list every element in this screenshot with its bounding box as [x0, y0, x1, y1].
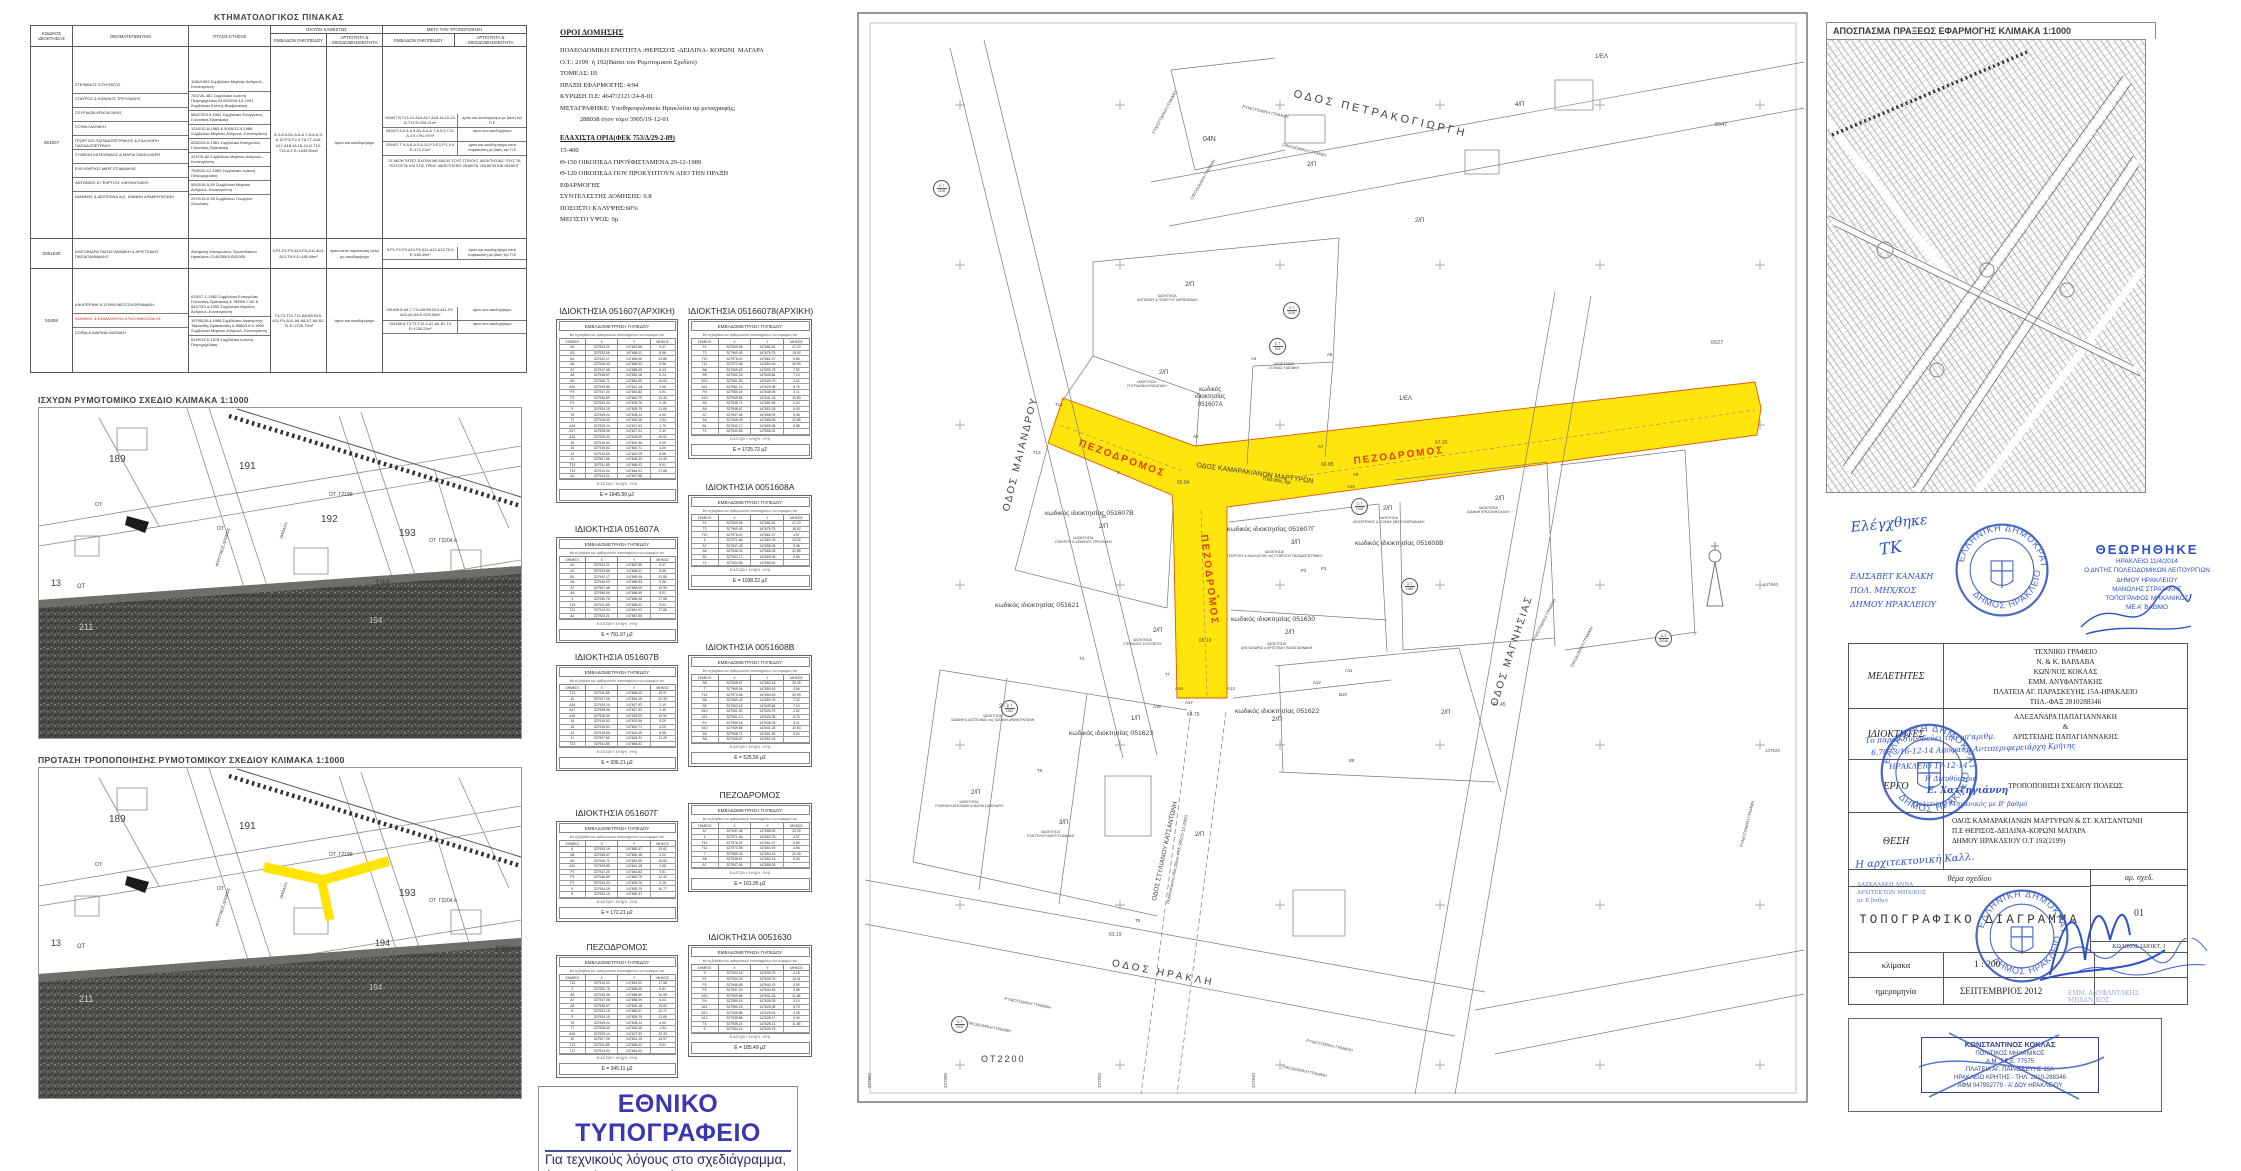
- ot-number: 2200: [952, 1025, 967, 1029]
- street-kamarakianon-martyron: ΟΔΟΣ ΚΑΜΑΡΑΚΙΑΝΩΝ ΜΑΡΤΥΡΩΝ: [1196, 462, 1314, 487]
- map-label: 6627: [1711, 340, 1723, 347]
- street-magnisias: ΟΔΟΣ ΜΑΓΝΗΣΙΑΣ: [1489, 594, 1536, 708]
- thesi-line: ΔΗΜΟΥ ΗΡΑΚΛΕΙΟΥ Ο.Τ 192(2199): [1952, 836, 2185, 846]
- coord-table-header: ΕΜΒΑΔΟΜΕΤΡΗΣΗ ΓΗΠΕΔΟΥ: [691, 805, 810, 815]
- after-row: 051608 Β Α8-7-Τ11-Β8-Β9-Β10-Α11-Ρ4-Α10-Α…: [383, 307, 526, 321]
- coord-total: Ε = 1038.22 μ2: [691, 575, 810, 587]
- cadastral-table-panel: ΚΤΗΜΑΤΟΛΟΓΙΚΟΣ ΠΙΝΑΚΑΣ ΚΩΔΙΚΟΣ ΙΔΙΟΚΤΗΣΙ…: [30, 12, 528, 373]
- current-area: Τ4-Τ3-Τ10-Τ11-Β8-Β9-Β10-Α11-Ρ4-Α10-Α9-Α8…: [271, 269, 327, 373]
- after-modification: 051607 Β Τ13-10-Α16-Α17-Α18-16-15-13-Β-Τ…: [383, 47, 527, 239]
- coord-total: Ε = 525.56 μ2: [691, 752, 810, 764]
- scale-label: κλίμακα: [1849, 953, 1944, 977]
- map-label: Ρ3: [1321, 566, 1326, 571]
- dense-cadastral-texture: [1827, 40, 2145, 492]
- after-status: άρτιο και οικοδομήσιμο με βάση την Π.Ε: [458, 114, 526, 127]
- coord-table-box: ΕΜΒΑΔΟΜΕΤΡΗΣΗ ΓΗΠΕΔΟΥΜε τη βοήθεια των ο…: [556, 665, 678, 772]
- idioktites-line: &: [1946, 722, 2185, 732]
- pezodromos-left-label: ΠΕΖΟΔΡΟΜΟΣ: [1077, 438, 1167, 480]
- ot-number: 1928: [1352, 507, 1367, 511]
- map-label: ΙΔΙΟΚΤΗΣΙΑ ΣΟΦΙΑΣ ΛΙΑΠΑΚΗ: [1269, 362, 1299, 371]
- idioktites-line: ΑΡΙΣΤΕΙΔΗΣ ΠΑΠΑΓΙΑΝΝΑΚΗΣ: [1946, 732, 2185, 742]
- col-header-area: ΕΜΒΑΔΟΝ ΟΙΚΟΠΕΔΟΥ: [271, 34, 327, 47]
- map-label: ΟΤ: [77, 584, 85, 591]
- coord-table-subtitle: Με τη βοήθεια των ορθογωνικών συντεταγμέ…: [691, 667, 810, 674]
- map-label: ΙΔΙΟΚΤΗΣΙΑ ΣΥΜΕΩΝ ΚΑΤΕΧΝΙΔΗ & ΜΑΡΙΑ ΣΑΚΕ…: [935, 800, 1003, 808]
- coord-table-header: ΕΜΒΑΔΟΜΕΤΡΗΣΗ ΓΗΠΕΔΟΥ: [559, 667, 676, 677]
- coord-table-box: ΕΜΒΑΔΟΜΕΤΡΗΣΗ ΓΗΠΕΔΟΥΜε τη βοήθεια των ο…: [556, 537, 678, 644]
- terms-limits-heading: ΕΛΑΧΙΣΤΑ ΟΡΙΑ(ΦΕΚ 753/Δ/29-2-89): [560, 135, 870, 142]
- after-status: άρτιο και οικοδομήσιμο: [458, 128, 526, 141]
- map-label: 3/Π: [1291, 540, 1300, 547]
- ot-number: 2204Α: [1656, 639, 1671, 643]
- terms-line: ΜΕΓΙΣΤΟ ΥΨΟΣ: 9μ: [560, 216, 870, 223]
- faded-name-line: ΕΜΜ. ΑΝΥΦΑΝΤΑΚΗΣ: [2068, 990, 2139, 997]
- map-label: 211: [79, 622, 93, 633]
- coord-table-title: ΙΔΙΟΚΤΗΣΙΑ 0051608Β: [688, 642, 812, 652]
- thesi-line: ΟΔΟΣ ΚΑΜΑΡΑΚΙΑΝΩΝ ΜΑΡΤΥΡΩΝ & ΣΤ. ΚΑΤΣΑΝΤ…: [1952, 816, 2185, 826]
- map-label: 66.85: [1321, 462, 1334, 468]
- parcel-051607B: κωδικός ιδιοκτησίας 051607Β: [1045, 510, 1134, 518]
- coord-table: ΙΔΙΟΚΤΗΣΙΑ 051607ΑΕΜΒΑΔΟΜΕΤΡΗΣΗ ΓΗΠΕΔΟΥΜ…: [556, 524, 678, 643]
- handwriting-scribble: [2060, 938, 2230, 988]
- map-label: 192: [321, 514, 338, 526]
- map-label: 3/Π: [1059, 820, 1068, 827]
- coord-table: ΙΔΙΟΚΤΗΣΙΑ 051607ΒΕΜΒΑΔΟΜΕΤΡΗΣΗ ΓΗΠΕΔΟΥΜ…: [556, 652, 678, 771]
- coord-table: ΙΔΙΟΚΤΗΣΙΑ 0051608ΑΕΜΒΑΔΟΜΕΤΡΗΣΗ ΓΗΠΕΔΟΥ…: [688, 482, 812, 590]
- current-plan-map-panel: ΙΣΧΥΩΝ ΡΥΜΟΤΟΜΙΚΟ ΣΧΕΔΙΟ ΚΛΙΜΑΚΑ 1:1000: [38, 395, 522, 739]
- owner-deed: 1186/1993 Συμβόλαιο Μερίνας Ανδρουλ.-Κον…: [189, 78, 270, 92]
- coord-table-box: ΕΜΒΑΔΟΜΕΤΡΗΣΗ ΓΗΠΕΔΟΥΜε τη βοήθεια των ο…: [688, 803, 812, 893]
- owner-deed: 8282/25-5-1981 Συμβόλαιο Ευαγγελίας Γαλα…: [189, 139, 270, 153]
- map-label: 195: [495, 584, 510, 595]
- coord-grid: ΣΗΜΕΙΟΧΥΜΗΚΟΣ9327934.15147639.750.18Ρ132…: [691, 964, 810, 1033]
- map-label: 189: [109, 454, 126, 466]
- map-label: ΙΔΙΟΚΤΗΣΙΑ ΓΕΩΡΓΙΟΥ & ΚΑΛΛΙΟΠΗΣ συζ ΓΕΩΡ…: [1227, 550, 1322, 558]
- map-label: ΡΥΜΟΤΟΜΙΚΗ ΓΡΑΜΜΗ: [1739, 800, 1755, 847]
- coord-formula: Ε=1/2 Σ(Χι + Χι+1)(Υι - Υι+1): [559, 479, 676, 487]
- designers-label: ΜΕΛΕΤΗΤΕΣ: [1849, 644, 1944, 708]
- owner-deed: 6150/7-1-1982 Συμβόλαιο Ευαγγελίας Γαλαν…: [189, 293, 270, 317]
- after-modification: 051608 Β Α8-7-Τ11-Β8-Β9-Β10-Α11-Ρ4-Α10-Α…: [383, 269, 527, 373]
- print-office-note: ΕΘΝΙΚΟ ΤΥΠΟΓΡΑΦΕΙΟ Για τεχνικούς λόγους …: [538, 1086, 798, 1171]
- map-label: ΡΥΜΟΤΟΜΙΚΗ ΓΡΑΜΜΗ: [1306, 1038, 1353, 1053]
- building-terms-heading: ΟΡΟΙ ΔΟΜΗΣΗΣ: [560, 28, 870, 37]
- meletites-line: ΤΕΧΝΙΚΟ ΓΡΑΦΕΙΟ: [1946, 647, 2185, 657]
- owner-deed: 6149/13-5-1978 Συμβόλαιο Ιωάννη Πετρομιχ…: [189, 336, 270, 349]
- map-label: 193: [399, 888, 416, 900]
- coord-table: ΠΕΖΟΔΡΟΜΟΣΕΜΒΑΔΟΜΕΤΡΗΣΗ ΓΗΠΕΔΟΥΜε τη βοή…: [556, 942, 678, 1078]
- municipal-stamp-slot: ΕΛΛΗΝΙΚΗ ΔΗΜΟΚΡΑΤΙΑ ΔΗΜΟΣ ΗΡΑΚΛΕΙΟΥ: [1952, 520, 2052, 620]
- map-label: Α16: [1175, 686, 1183, 691]
- survey-sheet: ΚΤΗΜΑΤΟΛΟΓΙΚΟΣ ΠΙΝΑΚΑΣ ΚΩΔΙΚΟΣ ΙΔΙΟΚΤΗΣΙ…: [0, 0, 2241, 1171]
- map-label: Τ7: [1165, 672, 1170, 677]
- ot-circle: Ο.Τ192: [1269, 338, 1286, 355]
- map-label: ΔΙΑΒΑΣΗ: [279, 882, 289, 900]
- handwritten-note: ΔΗΜΟΥ ΗΡΑΚΛΕΙΟΥ: [1850, 600, 1936, 609]
- designers-value: ΤΕΧΝΙΚΟ ΓΡΑΦΕΙΟΝ. & Κ. ΒΑΡΔΑΒΑΚΩΝ/ΝΟΣ ΚΟ…: [1944, 644, 2187, 708]
- owner-name: ΑΛΕΞΑΝΔΡΑ ΠΑΠΑΓΙΑΝΝΑΚΗ & ΑΡΙΣΤΕΙΔΗΣ ΠΑΠΑ…: [73, 247, 188, 260]
- map-label: ΙΔΙΟΚΤΗΣΙΑ ΑΙΚΑΤΕΡΙΝΗΣ & ΣΟΦΙΑΣ ΜΕΣΣΟΧΩΡ…: [1353, 516, 1424, 524]
- map-label: ΟΤ: [95, 502, 102, 508]
- coord-table-subtitle: Με τη βοήθεια των ορθογωνικών συντεταγμέ…: [559, 677, 676, 684]
- after-row: 9-Ρ1-Ρ2-Ρ3-Α10-Ρ4-Α11-Α12-Α13-Τ6-9 Ε=185…: [383, 247, 526, 261]
- owner-name: ΑΙΚΑΤΕΡΙΝΗ & ΣΟΦΙΑ ΜΕΣΣΟΧΩΡΙΑΝΑΚΗ: [73, 300, 188, 314]
- map-label: ΟΤ: [217, 886, 224, 892]
- implementation-act-panel: ΑΠΟΣΠΑΣΜΑ ΠΡΑΞΕΩΣ ΕΦΑΡΜΟΓΗΣ ΚΛΙΜΑΚΑ 1:10…: [1826, 22, 2156, 493]
- map-label: ΡΥΜΟΤΟΜΙΚΗ ΓΡΑΜΜΗ: [1151, 90, 1178, 134]
- coord-formula: Ε=1/2 Σ(Χι + Χι+1)(Υι - Υι+1): [559, 619, 676, 627]
- map-label: ΟΤ Γ2204 α: [429, 898, 457, 904]
- group-code: 051607: [31, 47, 73, 239]
- cadastral-group-51608: 51608ΑΙΚΑΤΕΡΙΝΗ & ΣΟΦΙΑ ΜΕΣΣΟΧΩΡΙΑΝΑΚΗΙΩ…: [31, 269, 527, 373]
- coord-formula: Ε=1/2 Σ(Χι + Χι+1)(Υι - Υι+1): [691, 868, 810, 876]
- map-label: ΡΥΜΟΤΟΜΙΚΗ ΓΡΑΜΜΗ: [1004, 996, 1051, 1010]
- terms-line: 15-400: [560, 147, 870, 154]
- cadastral-table: ΚΩΔΙΚΟΣ ΙΔΙΟΚΤΗΣΙΑΣ ΟΝΟΜΑΤΕΠΩΝΥΜΟ ΤΙΤΛΟΣ…: [30, 25, 527, 373]
- stamp-cross-strokes: [1909, 1027, 2109, 1107]
- after-row: 051607 Β Τ13-10-Α16-Α17-Α18-16-15-13-Β-Τ…: [383, 114, 526, 128]
- map-label: Α5: [1193, 434, 1198, 439]
- coord-table: ΙΔΙΟΚΤΗΣΙΑ 05166078(ΑΡΧΙΚΗ)ΕΜΒΑΔΟΜΕΤΡΗΣΗ…: [688, 306, 812, 459]
- coord-total: Ε = 185.49 μ2: [691, 1042, 810, 1054]
- meletites-line: ΠΛΑΤΕΙΑ ΑΓ. ΠΑΡΑΣΚΕΥΗΣ 15Α-ΗΡΑΚΛΕΙΟ: [1946, 687, 2185, 697]
- handwritten-note: ΕΛΙΣΑΒΕΤ ΚΑΝΑΚΗ: [1850, 572, 1933, 581]
- coord-table-header: ΕΜΒΑΔΟΜΕΤΡΗΣΗ ΓΗΠΕΔΟΥ: [691, 947, 810, 957]
- map-label: ΙΔΙΟΚΤΗΣΙΑ ΑΛΕΞΑΝΔΡΑΣ & ΑΡΙΣΤΕΙΔΗ ΠΑΠΑΓΙ…: [1241, 642, 1312, 650]
- ot-circle: Ο.Τ2200: [951, 1016, 968, 1033]
- faded-engineer-name: ΕΜΜ. ΑΝΥΦΑΝΤΑΚΗΣΜΗΧΑΝΙΚΟΣ: [2068, 990, 2139, 1004]
- map-label: ΔΙΑΒΑΣΗ: [279, 522, 289, 540]
- after-row: 051608 Α Τ4-Τ3-Τ10-4-Α7-Α6-Β1-Τ4 Ε=1038.…: [383, 321, 526, 335]
- map-label: 2/Π: [1159, 370, 1168, 377]
- parcel-051607G: κωδικός ιδιοκτησίας 051607Γ: [1227, 526, 1315, 534]
- map-label: Τ13: [1033, 450, 1041, 455]
- map-label: Α4: [1251, 356, 1256, 361]
- terms-line: ΤΟΜΕΑΣ: ΙΙΙ: [560, 70, 870, 77]
- coord-formula: Ε=1/2 Σ(Χι + Χι+1)(Υι - Υι+1): [691, 743, 810, 751]
- after-points: 051607 Α Α.3-Α.5-Β1-Α.6-Α.7-Α.5-9-Τ13-Α.…: [383, 128, 458, 141]
- cadastral-group-051607: 051607ΣΤΕΦΑΝΟΣ ΣΟΥΛΤΑΤΟΣΣΤΑΥΡΟΣ & ΚΩΝ/ΝΟ…: [31, 47, 527, 239]
- after-modification: 9-Ρ1-Ρ2-Ρ3-Α10-Ρ4-Α11-Α12-Α13-Τ6-9 Ε=185…: [383, 239, 527, 269]
- map-label: ΟΤ: [217, 526, 224, 532]
- owner-deed: 3197/5-82 Συμβόλαιο Μερίνας Ανδρουλ.-Κον…: [189, 153, 270, 167]
- map-label: 191: [239, 821, 256, 833]
- building-terms-panel: ΟΡΟΙ ΔΟΜΗΣΗΣ ΠΟΛΕΟΔΟΜΙΚΗ ΕΝΟΤΗΤΑ :ΘΕΡΙΣΣ…: [560, 28, 870, 228]
- map-label: ΟΤ: [95, 862, 102, 868]
- map-label: Α18: [1153, 704, 1161, 709]
- map-label: 9: [1217, 594, 1219, 599]
- map-label: 193: [399, 528, 416, 540]
- col-header-code: ΚΩΔΙΚΟΣ ΙΔΙΟΚΤΗΣΙΑΣ: [31, 26, 73, 47]
- map-label: 2/Π: [971, 790, 980, 797]
- map-label: 2/Π: [1285, 630, 1294, 637]
- map-label: 63.19: [1109, 932, 1122, 938]
- after-row: 051607 Γ 9-Α.8-Α.9-Α.10-Ρ.3-Ρ.2-Ρ.1-9-9 …: [383, 142, 526, 156]
- col-header-title: ΤΙΤΛΟΣ ΚΤΗΣΗΣ: [189, 26, 271, 47]
- map-label: Τ12: [1055, 402, 1063, 407]
- map-label: 191: [239, 461, 256, 473]
- map-label: 64.75: [1187, 712, 1200, 718]
- parcel-051622: κωδικός ιδιοκτησίας 051622 2/Π: [1235, 708, 1319, 724]
- coord-table-header: ΕΜΒΑΔΟΜΕΤΡΗΣΗ ΓΗΠΕΔΟΥ: [559, 539, 676, 549]
- coord-table-box: ΕΜΒΑΔΟΜΕΤΡΗΣΗ ΓΗΠΕΔΟΥΜε τη βοήθεια των ο…: [688, 495, 812, 590]
- coord-table-subtitle: Με τη βοήθεια των ορθογωνικών συντεταγμέ…: [691, 331, 810, 338]
- coord-table: ΙΔΙΟΚΤΗΣΙΑ 051607(ΑΡΧΙΚΗ)ΕΜΒΑΔΟΜΕΤΡΗΣΗ Γ…: [556, 306, 678, 503]
- engineer-stamp-box: ΚΩΝΣΤΑΝΤΙΝΟΣ ΚΟΚΛΑΣΠΟΛΙΤΙΚΟΣ ΜΗΧΑΝΙΚΟΣΑ.…: [1848, 1018, 2162, 1112]
- terms-line: 288038 στον τόμο 3905/19-12-01: [560, 116, 870, 123]
- coord-grid: ΣΗΜΕΙΟΧΥΜΗΚΟΣΤ4327940.55147656.5247.23Τ3…: [691, 338, 810, 435]
- implementation-act-map: [1826, 39, 2146, 493]
- coord-table-header: ΕΜΒΑΔΟΜΕΤΡΗΣΗ ΓΗΠΕΔΟΥ: [559, 321, 676, 331]
- coord-table-title: ΙΔΙΟΚΤΗΣΙΑ 051607Β: [556, 652, 678, 662]
- ot-circle: Ο.Τ1928: [1351, 498, 1368, 515]
- map-label: 2/Π: [1185, 282, 1194, 289]
- col-header-after: ΜΕΤΑ ΤΗΝ ΤΡΟΠΟΠΟΙΗΣΗ: [383, 26, 527, 34]
- coord-table-subtitle: Με τη βοήθεια των ορθογωνικών συντεταγμέ…: [559, 833, 676, 840]
- coord-table-title: ΙΔΙΟΚΤΗΣΙΑ 051607Γ: [556, 808, 678, 818]
- meletites-line: ΕΜΜ. ΑΝΥΦΑΝΤΑΚΗΣ: [1946, 677, 2185, 687]
- ot-number: 1982: [1002, 709, 1017, 713]
- map-label: ΙΔΙΟΚΤΗΣΙΑ ΙΩΑΝΝΗ ΚΡΑΣΟΝΙΚΟΛΑΚΗ: [1467, 506, 1510, 514]
- street-petrakogiorgi: ΟΔΟΣ ΠΕΤΡΑΚΟΓΙΩΡΓΗ: [1292, 88, 1468, 141]
- parcel-051623: κωδικός ιδιοκτησίας 051623: [1069, 730, 1153, 738]
- map-label: ΟΤ Γ2199: [329, 852, 353, 858]
- coord-table-title: ΙΔΙΟΚΤΗΣΙΑ 0051608Α: [688, 482, 812, 492]
- owner-name: ΣΟΦΙΑ ΛΙΑΠΑΚΗ: [73, 122, 188, 136]
- owner-name: ΙΩΑΝΝΗΣ & ΔΕΣΠΟΙΝΑ συζ. ΙΩΑΝΝΗ ΔΡΑΜΟΥΝΤΑ…: [73, 192, 188, 205]
- current-status: άρτιο και οικοδομήσιμο: [327, 269, 383, 373]
- map-label: Ρ2: [1301, 568, 1306, 573]
- owner-name: ΣΥΜΕΩΝ ΚΑΤΕΧΝΙΔΗΣ & ΜΑΡΙΑ ΣΑΚΕΛΛΑΡΗ: [73, 150, 188, 164]
- map-label: Α10: [1347, 484, 1355, 489]
- map-label: 2/Π: [1383, 506, 1392, 513]
- map-label: ΙΔΙΟΚΤΗΣΙΑ ΑΝΤΩΝΙΟΥ & ΓΕΩΡΓΙΟΥ ΧΑΡΩΝΙΤΑΚ…: [1137, 294, 1197, 302]
- coord-grid: ΣΗΜΕΙΟΧΥΜΗΚΟΣ8327933.15147650.4710.62Α83…: [559, 840, 676, 897]
- map-label: 194: [369, 983, 382, 993]
- signature: [2076, 582, 2196, 642]
- map-label: 2/Π: [1153, 628, 1162, 635]
- coord-grid: ΣΗΜΕΙΟΧΥΜΗΚΟΣΑ7327947.48147658.0924.3043…: [691, 822, 810, 868]
- map-label: 1/Π: [1131, 716, 1140, 723]
- current-plan-map-title: ΙΣΧΥΩΝ ΡΥΜΟΤΟΜΙΚΟ ΣΧΕΔΙΟ ΚΛΙΜΑΚΑ 1:1000: [38, 395, 522, 405]
- coord-table-box: ΕΜΒΑΔΟΜΕΤΡΗΣΗ ΓΗΠΕΔΟΥΜε τη βοήθεια των ο…: [556, 955, 678, 1078]
- terms-line: ΚΥΡΩΣΗ Π.Ε: 4647/2121/24-8-01: [560, 93, 870, 100]
- coord-table-title: ΙΔΙΟΚΤΗΣΙΑ 051607(ΑΡΧΙΚΗ): [556, 306, 678, 316]
- map-label: 211: [79, 994, 93, 1005]
- coord-table-subtitle: Με τη βοήθεια των ορθογωνικών συντεταγμέ…: [559, 331, 676, 338]
- map-label: 67.45: [1493, 702, 1506, 708]
- ot-number: 2198: [934, 189, 949, 193]
- coord-total: Ε = 1645.50 μ2: [559, 489, 676, 501]
- coord-formula: Ε=1/2 Σ(Χι + Χι+1)(Υι - Υι+1): [691, 566, 810, 574]
- coord-table-subtitle: Με τη βοήθεια των ορθογωνικών συντεταγμέ…: [691, 815, 810, 822]
- after-status: άρτιο και οικοδομήσιμο κατά παρέκκλιση μ…: [458, 142, 526, 155]
- map-label: 6647: [1715, 122, 1727, 129]
- col-header-area2: ΕΜΒΑΔΟΝ ΟΙΚΟΠΕΔΟΥ: [383, 34, 455, 47]
- map-label: 194: [369, 616, 382, 626]
- ot-number: 192: [1270, 347, 1285, 351]
- after-points: 051607 Γ 9-Α.8-Α.9-Α.10-Ρ.3-Ρ.2-Ρ.1-9-9 …: [383, 142, 458, 155]
- col-header-buildable: ΑΡΤΙΟΤΗΤΑ & ΟΙΚΟΔΟΜΗΣΙΜΟΤΗΤΑ: [327, 34, 383, 47]
- terms-line: ΠΟΣΟΣΤΟ ΚΑΛΥΨΗΣ:60%: [560, 205, 870, 212]
- map-label: ΡΥΜΟΤΟΜΙΚΗ ΓΡΑΜΜΗ: [1531, 598, 1557, 642]
- owner-name: ΣΤΕΦΑΝΟΣ ΣΟΥΛΤΑΤΟΣ: [73, 80, 188, 94]
- coord-table: ΠΕΖΟΔΡΟΜΟΣΕΜΒΑΔΟΜΕΤΡΗΣΗ ΓΗΠΕΔΟΥΜε τη βοή…: [688, 790, 812, 892]
- coord-table-subtitle: Με τη βοήθεια των ορθογωνικών συντεταγμέ…: [559, 549, 676, 556]
- col-header-name: ΟΝΟΜΑΤΕΠΩΝΥΜΟ: [73, 26, 189, 47]
- coord-table-box: ΕΜΒΑΔΟΜΕΤΡΗΣΗ ΓΗΠΕΔΟΥΜε τη βοήθεια των ο…: [688, 319, 812, 459]
- approval-title: ΘΕΩΡΗΘΗΚΕ: [2062, 542, 2232, 557]
- map-label: 2/Π: [1195, 832, 1204, 839]
- coord-table-subtitle: Με τη βοήθεια των ορθογωνικών συντεταγμέ…: [559, 967, 676, 974]
- map-label: 194: [375, 578, 390, 589]
- print-note-line1: Για τεχνικούς λόγους στο σχεδιάγραμμα,: [545, 1152, 791, 1169]
- proposal-plan-map-panel: ΠΡΟΤΑΣΗ ΤΡΟΠΟΠΟΙΗΣΗΣ ΡΥΜΟΤΟΜΙΚΟΥ ΣΧΕΔΙΟΥ…: [38, 755, 522, 1099]
- map-label: Τ5: [1135, 918, 1140, 923]
- handwritten-note: ΤΚ: [1878, 537, 1903, 559]
- coord-table-header: ΕΜΒΑΔΟΜΕΤΡΗΣΗ ΓΗΠΕΔΟΥ: [691, 321, 810, 331]
- coord-table-header: ΕΜΒΑΔΟΜΕΤΡΗΣΗ ΓΗΠΕΔΟΥ: [691, 497, 810, 507]
- terms-line: ΜΕΤΑΓΡΑΦΗΚΕ: Υποθηκοφυλακείο Ηρακλείου α…: [560, 105, 870, 112]
- map-label: 13: [51, 938, 61, 949]
- map-label: ΙΔΙΟΚΤΗΣΙΑ ΣΠΥΡΙΔΩΝΑ ΚΡΑΣΑΓΑΚΗ: [1127, 380, 1167, 388]
- print-office-title: ΕΘΝΙΚΟ ΤΥΠΟΓΡΑΦΕΙΟ: [545, 1090, 791, 1152]
- handwritten-note: ΠΟΛ. ΜΗΧ/ΚΟΣ: [1850, 586, 1916, 595]
- coord-table-box: ΕΜΒΑΔΟΜΕΤΡΗΣΗ ΓΗΠΕΔΟΥΜε τη βοήθεια των ο…: [556, 319, 678, 504]
- map-label: Β10: [1339, 692, 1347, 697]
- faded-name-line: ΜΗΧΑΝΙΚΟΣ: [2068, 997, 2139, 1004]
- map-label: Α7: [1318, 444, 1323, 449]
- current-area: Α.3-Α.5-Β1-Α.6-Α.7-Α.8-Α.9-Α.10-Ρ.3-Ρ.2-…: [271, 47, 327, 239]
- after-row: 051607 Α Α.3-Α.5-Β1-Α.6-Α.7-Α.5-9-Τ13-Α.…: [383, 128, 526, 142]
- coord-table-box: ΕΜΒΑΔΟΜΕΤΡΗΣΗ ΓΗΠΕΔΟΥΜε τη βοήθεια των ο…: [556, 821, 678, 922]
- owner-name: ΑΝΤΩΝΙΟΣ & ΓΕΩΡΓΙΟΣ ΧΑΡΩΝΙΤΑΚΗΣ: [73, 178, 188, 192]
- coord-grid: ΣΗΜΕΙΟΧΥΜΗΚΟΣΤ12327914.04147661.0217.583…: [559, 974, 676, 1054]
- ot-circle: Ο.Τ2204Α: [1655, 630, 1672, 647]
- coord-table: ΙΔΙΟΚΤΗΣΙΑ 051607ΓΕΜΒΑΔΟΜΕΤΡΗΣΗ ΓΗΠΕΔΟΥΜ…: [556, 808, 678, 922]
- owner-name: ΣΠΥΡΙΔΩΝ ΚΡΑΣΑΓΑΚΗΣ: [73, 108, 188, 122]
- coord-total: Ε = 161.95 μ2: [691, 878, 810, 890]
- map-label: 147640: [1763, 582, 1778, 587]
- map-label: 1/ΕΛ: [1595, 54, 1608, 61]
- map-label: Α12: [1313, 680, 1321, 685]
- coord-table-title: ΙΔΙΟΚΤΗΣΙΑ 051607Α: [556, 524, 678, 534]
- thesi-line: Π.Ε ΘΕΡΙΣΟΣ-ΔΕΙΛΙΝΑ-ΚΟΡΩΝΙ ΜΑΓΑΡΑ: [1952, 826, 2185, 836]
- map-label: ΡΥΜΟΤΟΜΙΚΗ ΓΡΑΜΜΗ: [1242, 104, 1289, 120]
- terms-line: ΕΦΑΡΜΟΓΗΣ: [560, 182, 870, 189]
- coord-grid: ΣΗΜΕΙΟΧΥΜΗΚΟΣΑ2327924.21147667.589.47Α33…: [559, 556, 676, 619]
- parcel-051630: κωδικός ιδιοκτησίας 051630: [1231, 616, 1315, 624]
- owner-name: ΕΛΕΥΘΕΡΙΟΣ ΜΑΡΓΙΤΣΙΑΝΑΚΗΣ: [73, 164, 188, 178]
- map-label: 189: [109, 814, 126, 826]
- street-irakli: ΟΔΟΣ ΗΡΑΚΛΗ: [1111, 958, 1216, 990]
- after-status: άρτιο και οικοδομήσιμο: [458, 321, 526, 334]
- map-label: ΟΙΚΟΔΟΜΙΚΗ ΓΡΑΜΜΗ: [966, 1020, 1012, 1034]
- coord-grid: ΣΗΜΕΙΟΧΥΜΗΚΟΣΑ8327948.67147652.1820.4973…: [691, 674, 810, 743]
- after-points: 9-Ρ1-Ρ2-Ρ3-Α10-Ρ4-Α11-Α12-Α13-Τ6-9 Ε=185…: [383, 247, 458, 260]
- coord-total: Ε = 336.21 μ2: [559, 757, 676, 769]
- pezodromos-right-label: ΠΕΖΟΔΡΟΜΟΣ: [1353, 445, 1445, 468]
- map-label: 327920: [1097, 1073, 1102, 1088]
- owner-deed: 19795/28-4-1988 Συμβόλαιο Αικατερίνης Τσ…: [189, 317, 270, 336]
- ot-circle: Ο.Τ2199: [1283, 302, 1300, 319]
- map-label: 13: [51, 578, 61, 589]
- coord-formula: Ε=1/2 Σ(Χι + Χι+1)(Υι - Υι+1): [559, 898, 676, 906]
- cadastral-group-0051630: 0051630ΑΛΕΞΑΝΔΡΑ ΠΑΠΑΓΙΑΝΝΑΚΗ & ΑΡΙΣΤΕΙΔ…: [31, 239, 527, 269]
- date-label: ημερομηνία: [1849, 978, 1944, 1004]
- map-label: ΑΓΡΟΤΙΚΟΣ ΔΡΟΜΟΣ: [215, 887, 232, 927]
- current-plan-map: 189ΟΤ191ΟΤ192ΟΤ Γ2199193ΟΤ Γ2204 α194195…: [38, 407, 522, 739]
- map-label: 65.84: [1177, 480, 1190, 486]
- group-code: 51608: [31, 269, 73, 373]
- owner-deed: 7599/20-12-1989 Συμβόλαιο Ιωάννη Πετρομι…: [189, 167, 270, 181]
- coord-table-header: ΕΜΒΑΔΟΜΕΤΡΗΣΗ ΓΗΠΕΔΟΥ: [559, 957, 676, 967]
- owner-deed: 5843/16-5-89 Συμβόλαιο Μερίνας Ανδρουλ.-…: [189, 181, 270, 195]
- map-label: ΟΙΚΟΔΟΜΙΚΗ ΓΡΑΜΜΗ: [1189, 159, 1216, 201]
- map-label: ΑΓΡΟΤΙΚΟΣ ΔΡΟΜΟΣ: [215, 527, 232, 567]
- coord-grid: ΣΗΜΕΙΟΧΥΜΗΚΟΣΤ4327940.55147656.5247.23Τ3…: [691, 514, 810, 566]
- map-label: Α6: [1327, 352, 1332, 357]
- owner-deed: Απόφαση Μονομελούς Πρωτοδικείου Ηρακλείο…: [189, 247, 270, 260]
- coord-table-header: ΕΜΒΑΔΟΜΕΤΡΗΣΗ ΓΗΠΕΔΟΥ: [559, 823, 676, 833]
- coord-formula: Ε=1/2 Σ(Χι + Χι+1)(Υι - Υι+1): [559, 747, 676, 755]
- map-label: Α13: [1227, 686, 1235, 691]
- parcel-051607A: κωδικός ιδιοκτησίας 051607Α: [1195, 386, 1225, 408]
- map-label: 2/Π: [1415, 218, 1424, 225]
- group-code: 0051630: [31, 239, 73, 269]
- parcel-051621: κωδικός ιδιοκτησίας 051621: [995, 602, 1079, 610]
- coord-total: Ε = 791.97 μ2: [559, 629, 676, 641]
- map-label: Α17: [1185, 700, 1193, 705]
- pezodromos-vertical-label: ΠΕΖΟΔΡΟΜΟΣ: [1197, 534, 1220, 626]
- ot-circle: Ο.Τ1985: [1401, 578, 1418, 595]
- current-status: άρτιο κατά παρέκκλιση αλλά μη οικοδομήσι…: [327, 239, 383, 269]
- idioktites-line: ΑΛΕΞΑΝΔΡΑ ΠΑΠΑΓΙΑΝΝΑΚΗ: [1946, 712, 2185, 722]
- ot-number: 2199: [1284, 311, 1299, 315]
- meletites-line: ΚΩΝ/ΝΟΣ ΚΟΚΛΑΣ: [1946, 667, 2185, 677]
- map-label: 4/Π: [1515, 102, 1524, 109]
- coord-table-title: ΠΕΖΟΔΡΟΜΟΣ: [556, 942, 678, 952]
- map-label: 195: [495, 944, 510, 955]
- map-label: ΟΤ: [77, 944, 85, 951]
- coord-table-title: ΙΔΙΟΚΤΗΣΙΑ 05166078(ΑΡΧΙΚΗ): [688, 306, 812, 316]
- map-label: Α11: [1345, 668, 1353, 673]
- map-label: Τ6: [1037, 768, 1042, 773]
- map-label: 194: [375, 938, 390, 949]
- col-header-buildable2: ΑΡΤΙΟΤΗΤΑ & ΟΙΚΟΔΟΜΗΣΙΜΟΤΗΤΑ: [455, 34, 527, 47]
- terms-line: ΠΟΛΕΟΔΟΜΙΚΗ ΕΝΟΤΗΤΑ :ΘΕΡΙΣΣΟΣ -ΔΕΙΛΙΝΑ- …: [560, 47, 870, 54]
- coord-table-subtitle: Με τη βοήθεια των ορθογωνικών συντεταγμέ…: [691, 957, 810, 964]
- map-label: 2/Π: [1307, 162, 1316, 169]
- ot-number: 1985: [1402, 587, 1417, 591]
- map-label: ΙΔΙΟΚΤΗΣΙΑ ΣΤΕΦΑΝΟΥ ΣΟΥΛΤΑΤΟΥ: [1123, 638, 1162, 646]
- map-label: 147620: [1765, 748, 1780, 753]
- terms-line: Θ-150 ΟΙΚΟΠΕΔΑ ΠΡΟΫΦΙΣΤΑΜΕΝΑ 29-12-1989: [560, 159, 870, 166]
- owner-name: ΣΤΑΥΡΟΣ & ΚΩΝ/ΝΟΣ ΤΡΕΥΛΑΚΗΣ: [73, 94, 188, 108]
- map-label: ΟΤ Γ2199: [329, 492, 353, 498]
- coord-total: Ε = 345.11 μ2: [559, 1063, 676, 1075]
- handwritten-note: Ελέγχθηκε: [1850, 512, 1928, 536]
- terms-line: Θ-120 ΟΙΚΟΠΕΔΑ ΠΟΥ ΠΡΟΚΥΠΤΟΥΝ ΑΠΟ ΤΗΝ ΠΡ…: [560, 170, 870, 177]
- label-ot2200: ΟΤ2200: [981, 1054, 1026, 1065]
- owner-name: ΙΩΑΝΝΗΣ & ΕΜΜΑΝΟΥΗΛ ΚΡΑΣΟΝΙΚΟΛΑΚΗΣ: [73, 314, 188, 328]
- owner-deed: 763726-481 Συμβόλαιο Ιωάννη Πετρομιχελάκ…: [189, 92, 270, 111]
- owner-deed: 584270/9-9-1981 Συμβόλαιο Ευαγγελίας Γαλ…: [189, 111, 270, 125]
- map-label: ΟΙΚΟΔΟΜΙΚΗ ΓΡΑΜΜΗ: [1282, 1064, 1327, 1078]
- coord-table: ΙΔΙΟΚΤΗΣΙΑ 0051630ΕΜΒΑΔΟΜΕΤΡΗΣΗ ΓΗΠΕΔΟΥΜ…: [688, 932, 812, 1057]
- after-points: 051608 Β Α8-7-Τ11-Β8-Β9-Β10-Α11-Ρ4-Α10-Α…: [383, 307, 458, 320]
- coord-table: ΙΔΙΟΚΤΗΣΙΑ 0051608ΒΕΜΒΑΔΟΜΕΤΡΗΣΗ ΓΗΠΕΔΟΥ…: [688, 642, 812, 767]
